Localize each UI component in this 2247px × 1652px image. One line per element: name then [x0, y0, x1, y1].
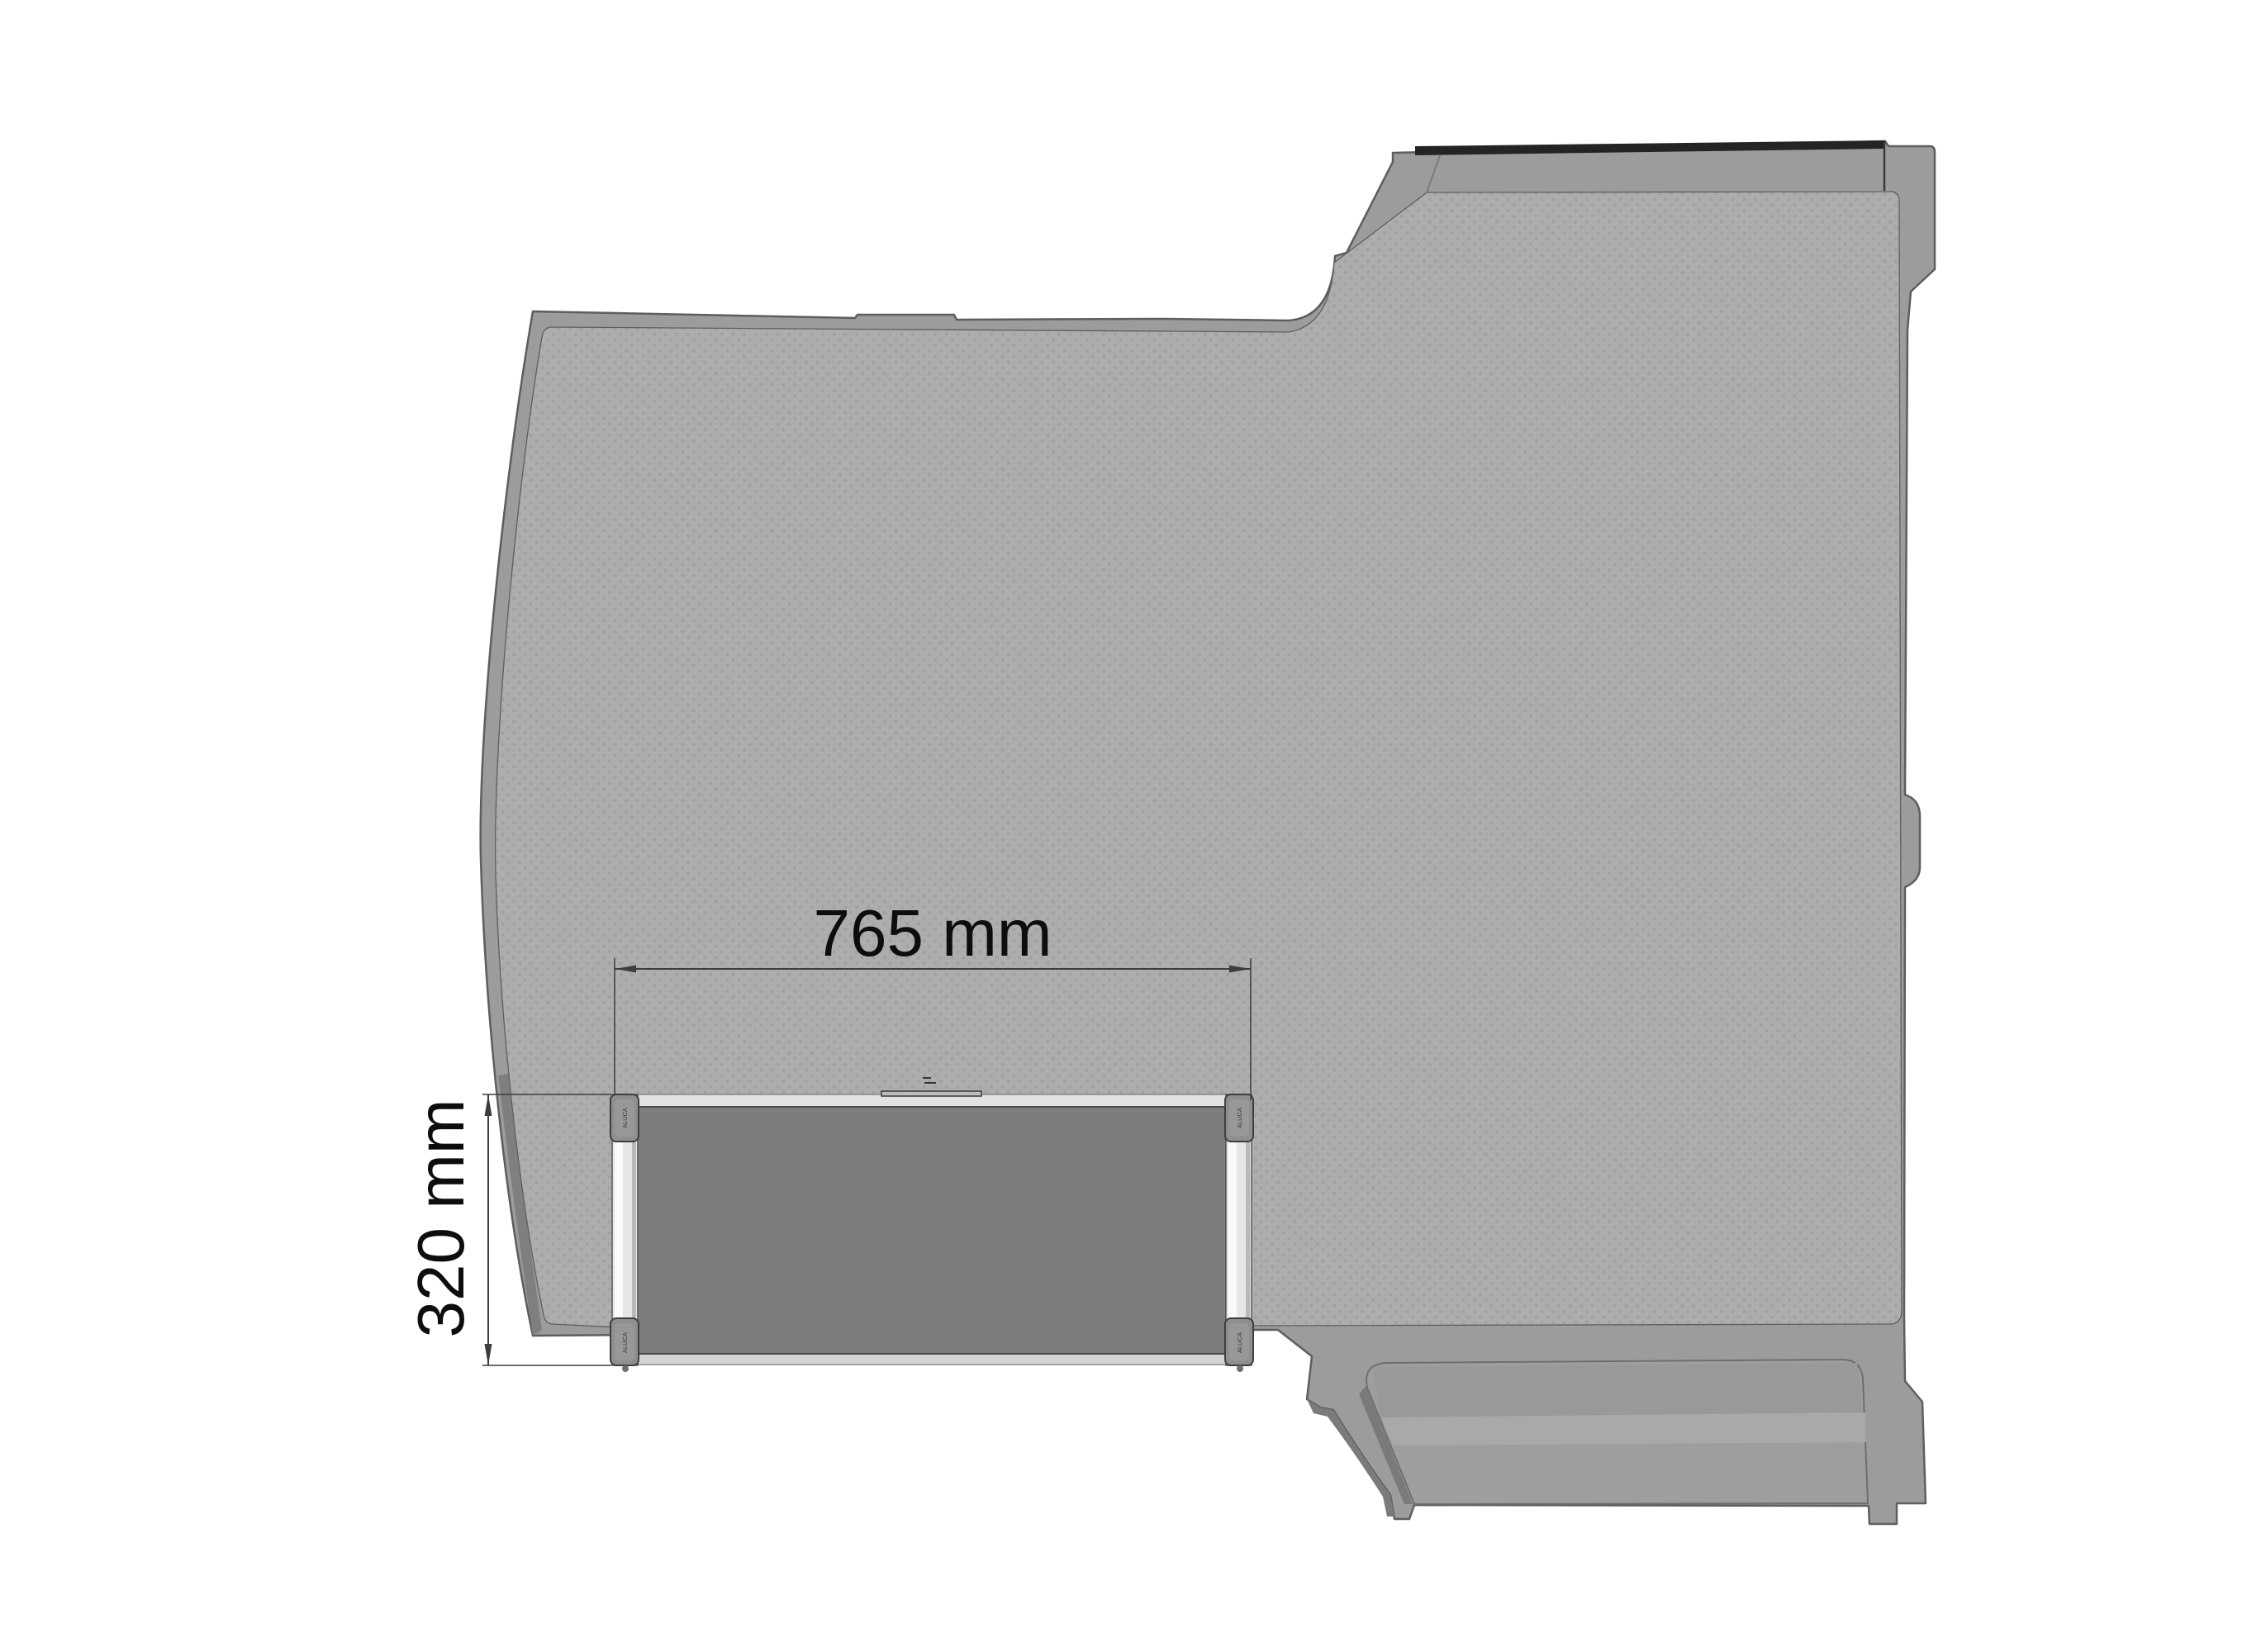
svg-text:765 mm: 765 mm: [814, 896, 1052, 970]
svg-text:320 mm: 320 mm: [404, 1099, 477, 1338]
svg-text:ALUCA: ALUCA: [1236, 1108, 1243, 1128]
svg-text:ALUCA: ALUCA: [1236, 1332, 1243, 1353]
svg-text:ALUCA: ALUCA: [621, 1108, 629, 1128]
svg-text:ALUCA: ALUCA: [621, 1332, 629, 1353]
